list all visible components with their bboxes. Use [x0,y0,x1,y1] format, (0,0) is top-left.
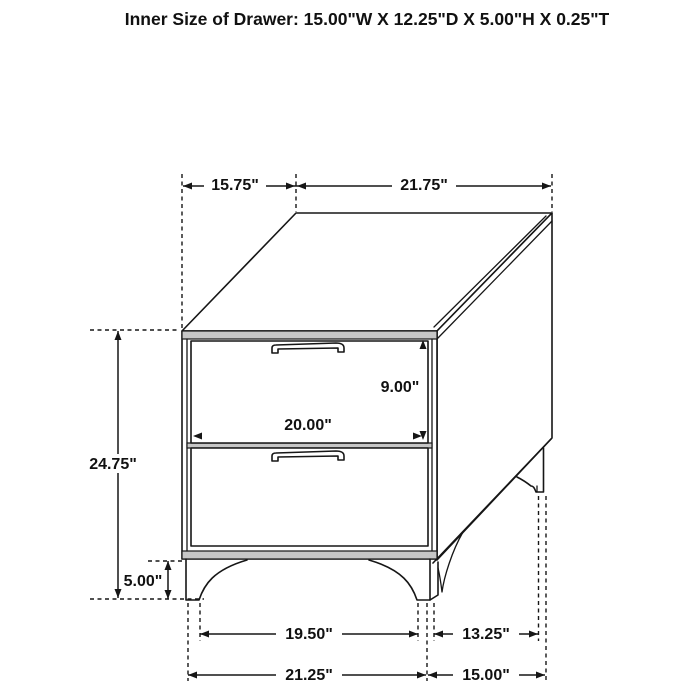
arrowhead [115,331,122,340]
front-left-leg [186,559,247,600]
dim-label-top-depth: 15.75" [211,177,259,194]
dim-label-base-depth: 15.00" [462,667,510,684]
nightstand [182,213,552,600]
base-rail [182,551,437,559]
arrowhead [434,631,443,638]
dim-label-leg-height: 5.00" [124,573,163,590]
drawer-2-front [191,448,428,546]
dim-label-top-width: 21.75" [400,177,448,194]
top-rail [182,331,437,339]
front-right-leg-side [430,562,438,600]
dim-label-base-width: 21.25" [285,667,333,684]
arrowhead [165,590,172,599]
arrowhead [542,183,551,190]
technical-drawing-page: Inner Size of Drawer: 15.00"W X 12.25"D … [0,0,700,700]
arrowhead [536,672,545,679]
dim-label-front-legs-span: 19.50" [285,626,333,643]
front-right-leg [369,559,430,600]
arrowhead [115,589,122,598]
dim-label-side-legs-span: 13.25" [462,626,510,643]
arrowhead [417,672,426,679]
arrowhead [529,631,538,638]
arrowhead [428,672,437,679]
dim-label-drawer-width: 20.00" [284,417,332,434]
arrowhead [286,183,295,190]
dim-label-overall-height: 24.75" [89,456,137,473]
dim-label-drawer-height: 9.00" [381,379,420,396]
arrowhead [200,631,209,638]
arrowhead [165,561,172,570]
arrowhead [183,183,192,190]
arrowhead [409,631,418,638]
arrowhead [188,672,197,679]
arrowhead [297,183,306,190]
nightstand-dimension-diagram: 15.75" 21.75" 24.75" 5.00" 9.00" 20.00" … [0,0,700,700]
